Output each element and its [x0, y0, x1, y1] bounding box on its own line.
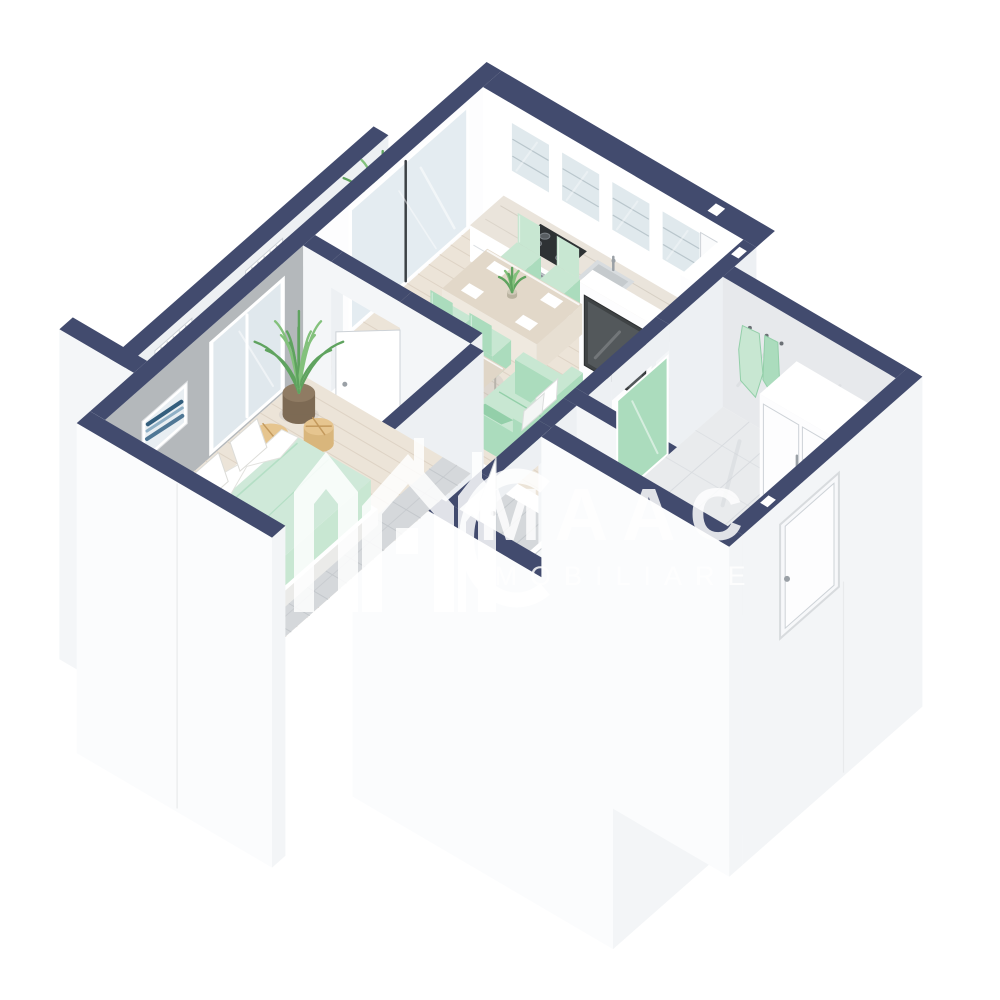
watermark: MAAC IMOBILIARE [294, 438, 759, 612]
logo-house-center [362, 438, 454, 612]
floor-plan-render: MAAC IMOBILIARE [0, 0, 1000, 1000]
watermark-title: MAAC [479, 473, 757, 556]
watermark-subtitle: IMOBILIARE [474, 561, 759, 591]
logo-house-left [294, 452, 358, 612]
watermark-layer: MAAC IMOBILIARE [0, 0, 1000, 1000]
